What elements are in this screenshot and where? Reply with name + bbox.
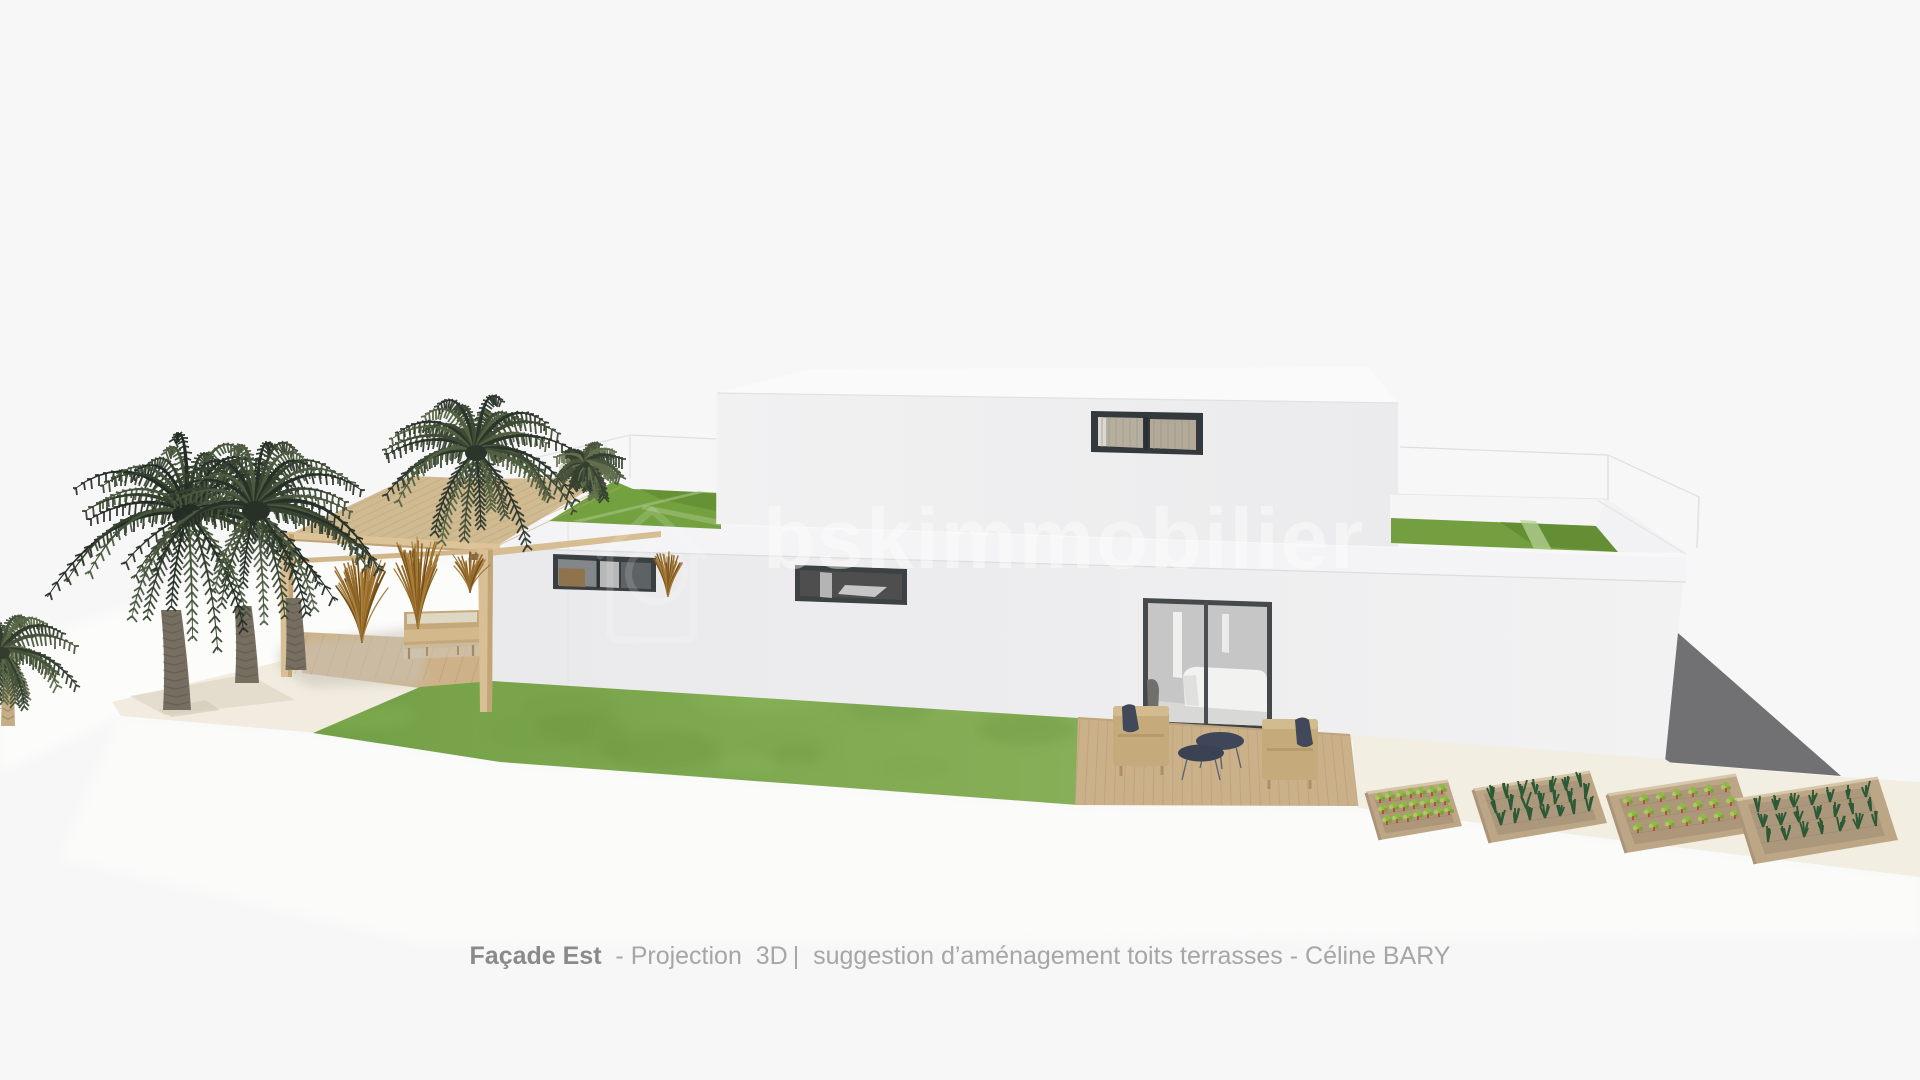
svg-text:bskimmobilier: bskimmobilier bbox=[763, 492, 1365, 587]
